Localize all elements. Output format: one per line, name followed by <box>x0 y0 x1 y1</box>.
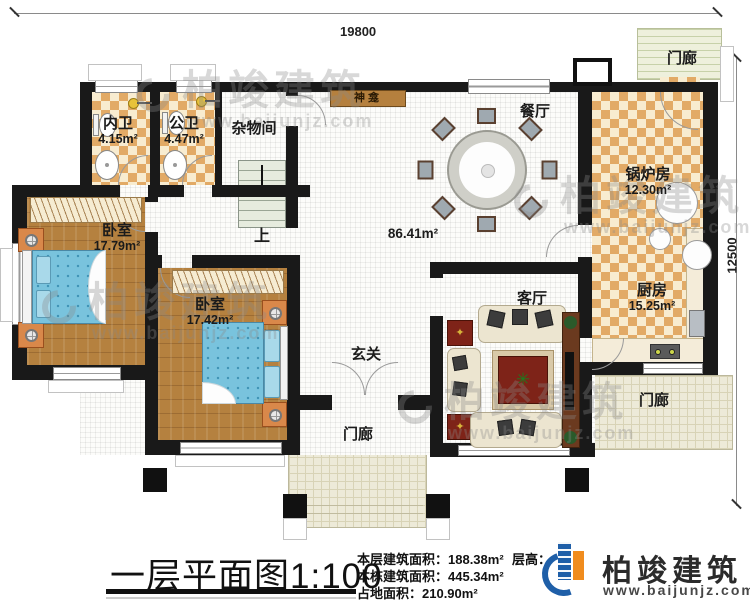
nightstand <box>18 322 44 348</box>
pillow <box>264 366 280 398</box>
stairs-up-label: 上 <box>248 228 276 246</box>
room-name: 卧室 <box>178 296 242 313</box>
wall <box>145 197 158 202</box>
nightstand <box>262 402 287 427</box>
lamp-icon <box>25 329 38 342</box>
side-table: ✦ <box>447 320 473 346</box>
room-name: 玄关 <box>336 346 396 363</box>
room-label-bath-public: 公卫 4.47m² <box>152 115 216 147</box>
wall <box>148 185 184 197</box>
column <box>143 468 167 492</box>
sink-basin <box>163 150 187 180</box>
wall <box>12 185 120 197</box>
title-underline-thin <box>106 597 356 599</box>
sofa-cushion <box>452 355 468 371</box>
lamp-icon <box>25 234 38 247</box>
logo-building-blue <box>558 542 571 580</box>
watermark: 柏竣建筑 www.baijunjz.com <box>44 282 279 344</box>
window-sill <box>0 248 13 322</box>
wall <box>145 255 162 268</box>
wall <box>287 255 300 455</box>
room-label-bedroom1: 卧室 17.79m² <box>85 222 149 254</box>
room-name: 锅炉房 <box>598 166 698 183</box>
room-label-boiler: 锅炉房 12.30m² <box>598 166 698 198</box>
chair <box>418 161 434 180</box>
watermark-brand: 柏竣建筑 <box>182 70 373 111</box>
top-dimension-line <box>14 13 718 14</box>
room-name: 杂物间 <box>218 120 290 137</box>
room-name: 餐厅 <box>503 103 567 120</box>
room-name: 门廊 <box>328 426 388 443</box>
room-label-dining: 餐厅 <box>503 103 567 120</box>
dining-table-center <box>481 164 495 178</box>
porch-top-step <box>720 46 734 102</box>
room-name: 公卫 <box>152 115 216 132</box>
bed-headboard <box>280 326 288 400</box>
nightstand <box>18 228 44 252</box>
column <box>283 494 307 518</box>
boiler-tank <box>682 240 712 270</box>
room-name: 门廊 <box>656 50 708 67</box>
wall <box>287 395 332 410</box>
room-label-porch-top: 门廊 <box>656 50 708 67</box>
wall <box>286 126 298 228</box>
room-label-living: 客厅 <box>500 290 564 307</box>
hall-area-label: 86.41m² <box>376 226 450 242</box>
room-area: 17.42m² <box>178 313 242 327</box>
room-name: 卧室 <box>85 222 149 239</box>
stove <box>650 344 680 359</box>
room-area: 4.15m² <box>86 132 150 146</box>
room-label-porch-right: 门廊 <box>626 392 682 409</box>
wall <box>192 255 300 268</box>
chimney <box>573 58 612 86</box>
window-sill <box>88 64 142 81</box>
room-area: 15.25m² <box>606 299 698 313</box>
sofa-cushion <box>512 309 528 325</box>
column <box>426 494 450 518</box>
stairs-label: 上 <box>248 228 276 246</box>
window <box>468 79 550 94</box>
dimension-tick <box>9 7 20 18</box>
column-base <box>283 518 307 540</box>
room-name: 厨房 <box>606 282 698 299</box>
bed-headboard <box>22 250 32 324</box>
brand-logo-icon <box>540 542 596 598</box>
porch-step-line <box>292 513 423 514</box>
room-area: 86.41m² <box>376 226 450 242</box>
porch-step-line <box>292 505 423 506</box>
watermark: 柏竣建筑 www.baijunjz.com <box>400 382 635 444</box>
dimension-tick <box>712 7 723 18</box>
room-area: 4.47m² <box>152 132 216 146</box>
column <box>565 468 589 492</box>
room-label-kitchen: 厨房 15.25m² <box>606 282 698 314</box>
pillow <box>36 256 51 284</box>
burner-icon <box>669 349 675 355</box>
lamp-icon <box>269 409 282 422</box>
room-name: 门廊 <box>626 392 682 409</box>
wall <box>578 257 592 338</box>
watermark-url: www.baijunjz.com <box>448 423 635 444</box>
window-sill <box>48 380 124 393</box>
sink-basin <box>95 150 119 180</box>
stat-footprint-area: 占地面积：210.90m² <box>357 583 478 602</box>
window <box>53 367 121 380</box>
sofa-cushion <box>535 310 554 329</box>
sofa-cushion <box>487 310 506 329</box>
chair <box>477 108 496 124</box>
logo-building-orange <box>573 551 584 580</box>
room-label-bedroom2: 卧室 17.42m² <box>178 296 242 328</box>
watermark-url: www.baijunjz.com <box>564 217 750 238</box>
plant-icon <box>564 316 577 329</box>
wall <box>430 262 578 274</box>
wardrobe <box>30 197 142 223</box>
room-label-bath-ensuite: 内卫 4.15m² <box>86 115 150 147</box>
room-area: 17.79m² <box>85 239 149 253</box>
floor-plan-canvas: 19800 12500 <box>0 0 750 606</box>
room-name: 内卫 <box>86 115 150 132</box>
window <box>95 80 138 93</box>
column-base <box>426 518 450 540</box>
top-dimension-label: 19800 <box>340 24 376 39</box>
room-area: 12.30m² <box>598 183 698 197</box>
room-label-foyer: 玄关 <box>336 346 396 363</box>
room-label-storage: 杂物间 <box>218 120 290 137</box>
title-underline <box>106 589 356 594</box>
room-name: 客厅 <box>500 290 564 307</box>
window <box>643 363 703 374</box>
chair <box>477 216 496 232</box>
burner-icon <box>655 349 661 355</box>
window <box>180 442 282 454</box>
wall <box>430 262 443 278</box>
room-label-porch-bottom: 门廊 <box>328 426 388 443</box>
brand-url: www.baijunjz.com <box>603 582 750 598</box>
window-sill <box>175 455 285 467</box>
watermark-brand: 柏竣建筑 <box>444 382 635 423</box>
kitchen-sink <box>689 310 705 337</box>
